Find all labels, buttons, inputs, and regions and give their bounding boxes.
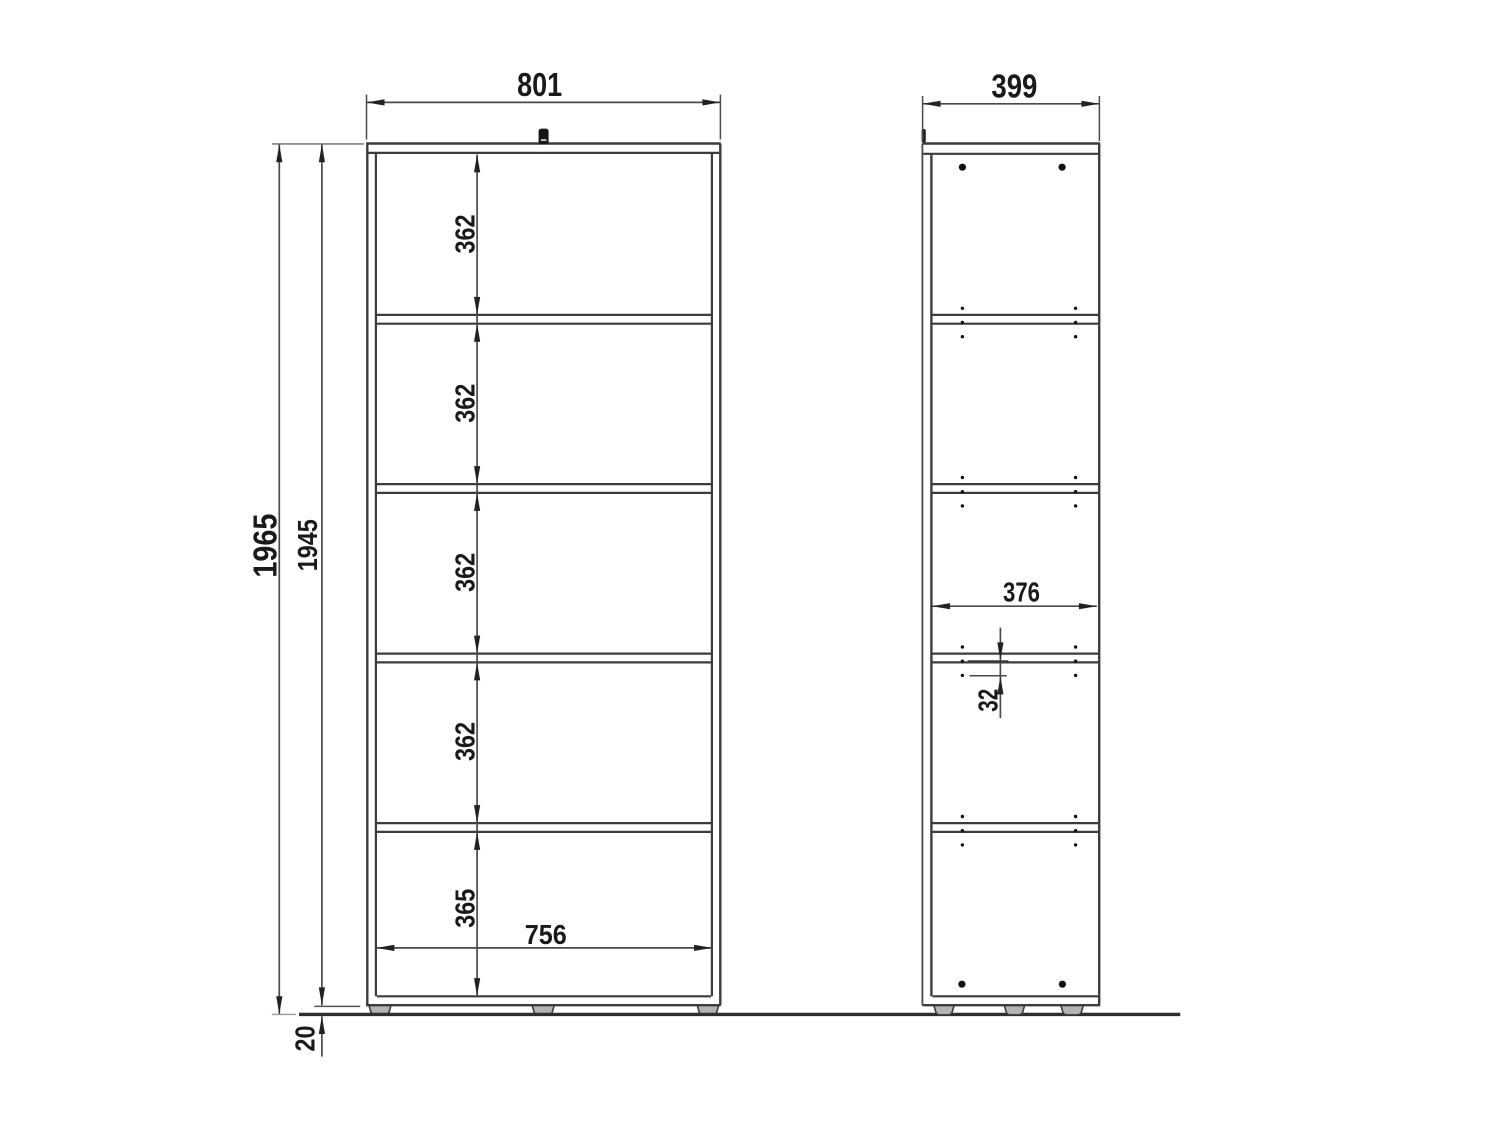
svg-text:362: 362 — [450, 553, 481, 592]
svg-text:362: 362 — [450, 214, 481, 253]
svg-text:399: 399 — [991, 67, 1037, 104]
svg-text:756: 756 — [525, 919, 567, 950]
svg-text:801: 801 — [517, 66, 562, 103]
svg-text:32: 32 — [972, 689, 1003, 712]
svg-text:362: 362 — [450, 722, 481, 761]
svg-text:365: 365 — [450, 889, 481, 928]
svg-text:362: 362 — [450, 384, 481, 423]
svg-text:1965: 1965 — [247, 514, 284, 578]
svg-text:1945: 1945 — [292, 519, 323, 571]
svg-text:376: 376 — [1003, 577, 1040, 608]
svg-text:20: 20 — [290, 1026, 321, 1052]
